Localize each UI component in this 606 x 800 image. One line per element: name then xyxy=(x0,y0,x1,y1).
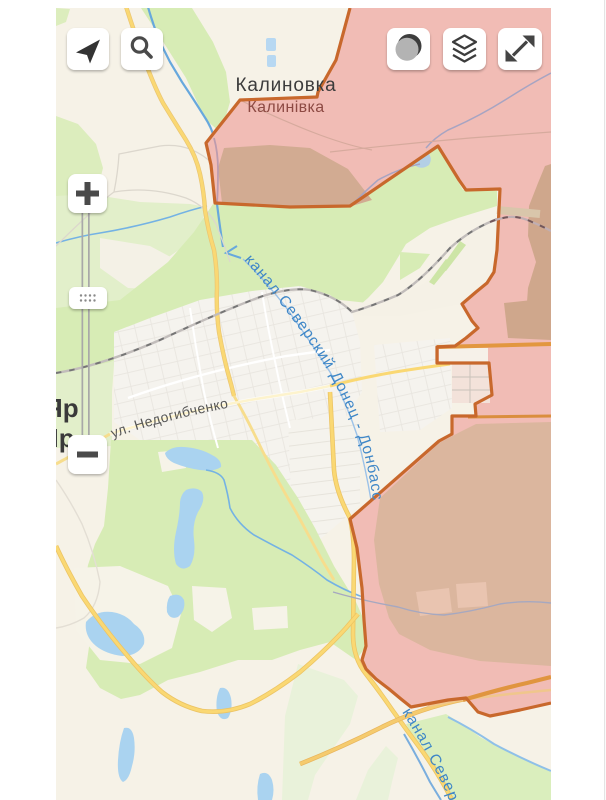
svg-text:Калиновка: Калиновка xyxy=(236,75,337,96)
svg-text:Калинівка: Калинівка xyxy=(247,99,324,116)
